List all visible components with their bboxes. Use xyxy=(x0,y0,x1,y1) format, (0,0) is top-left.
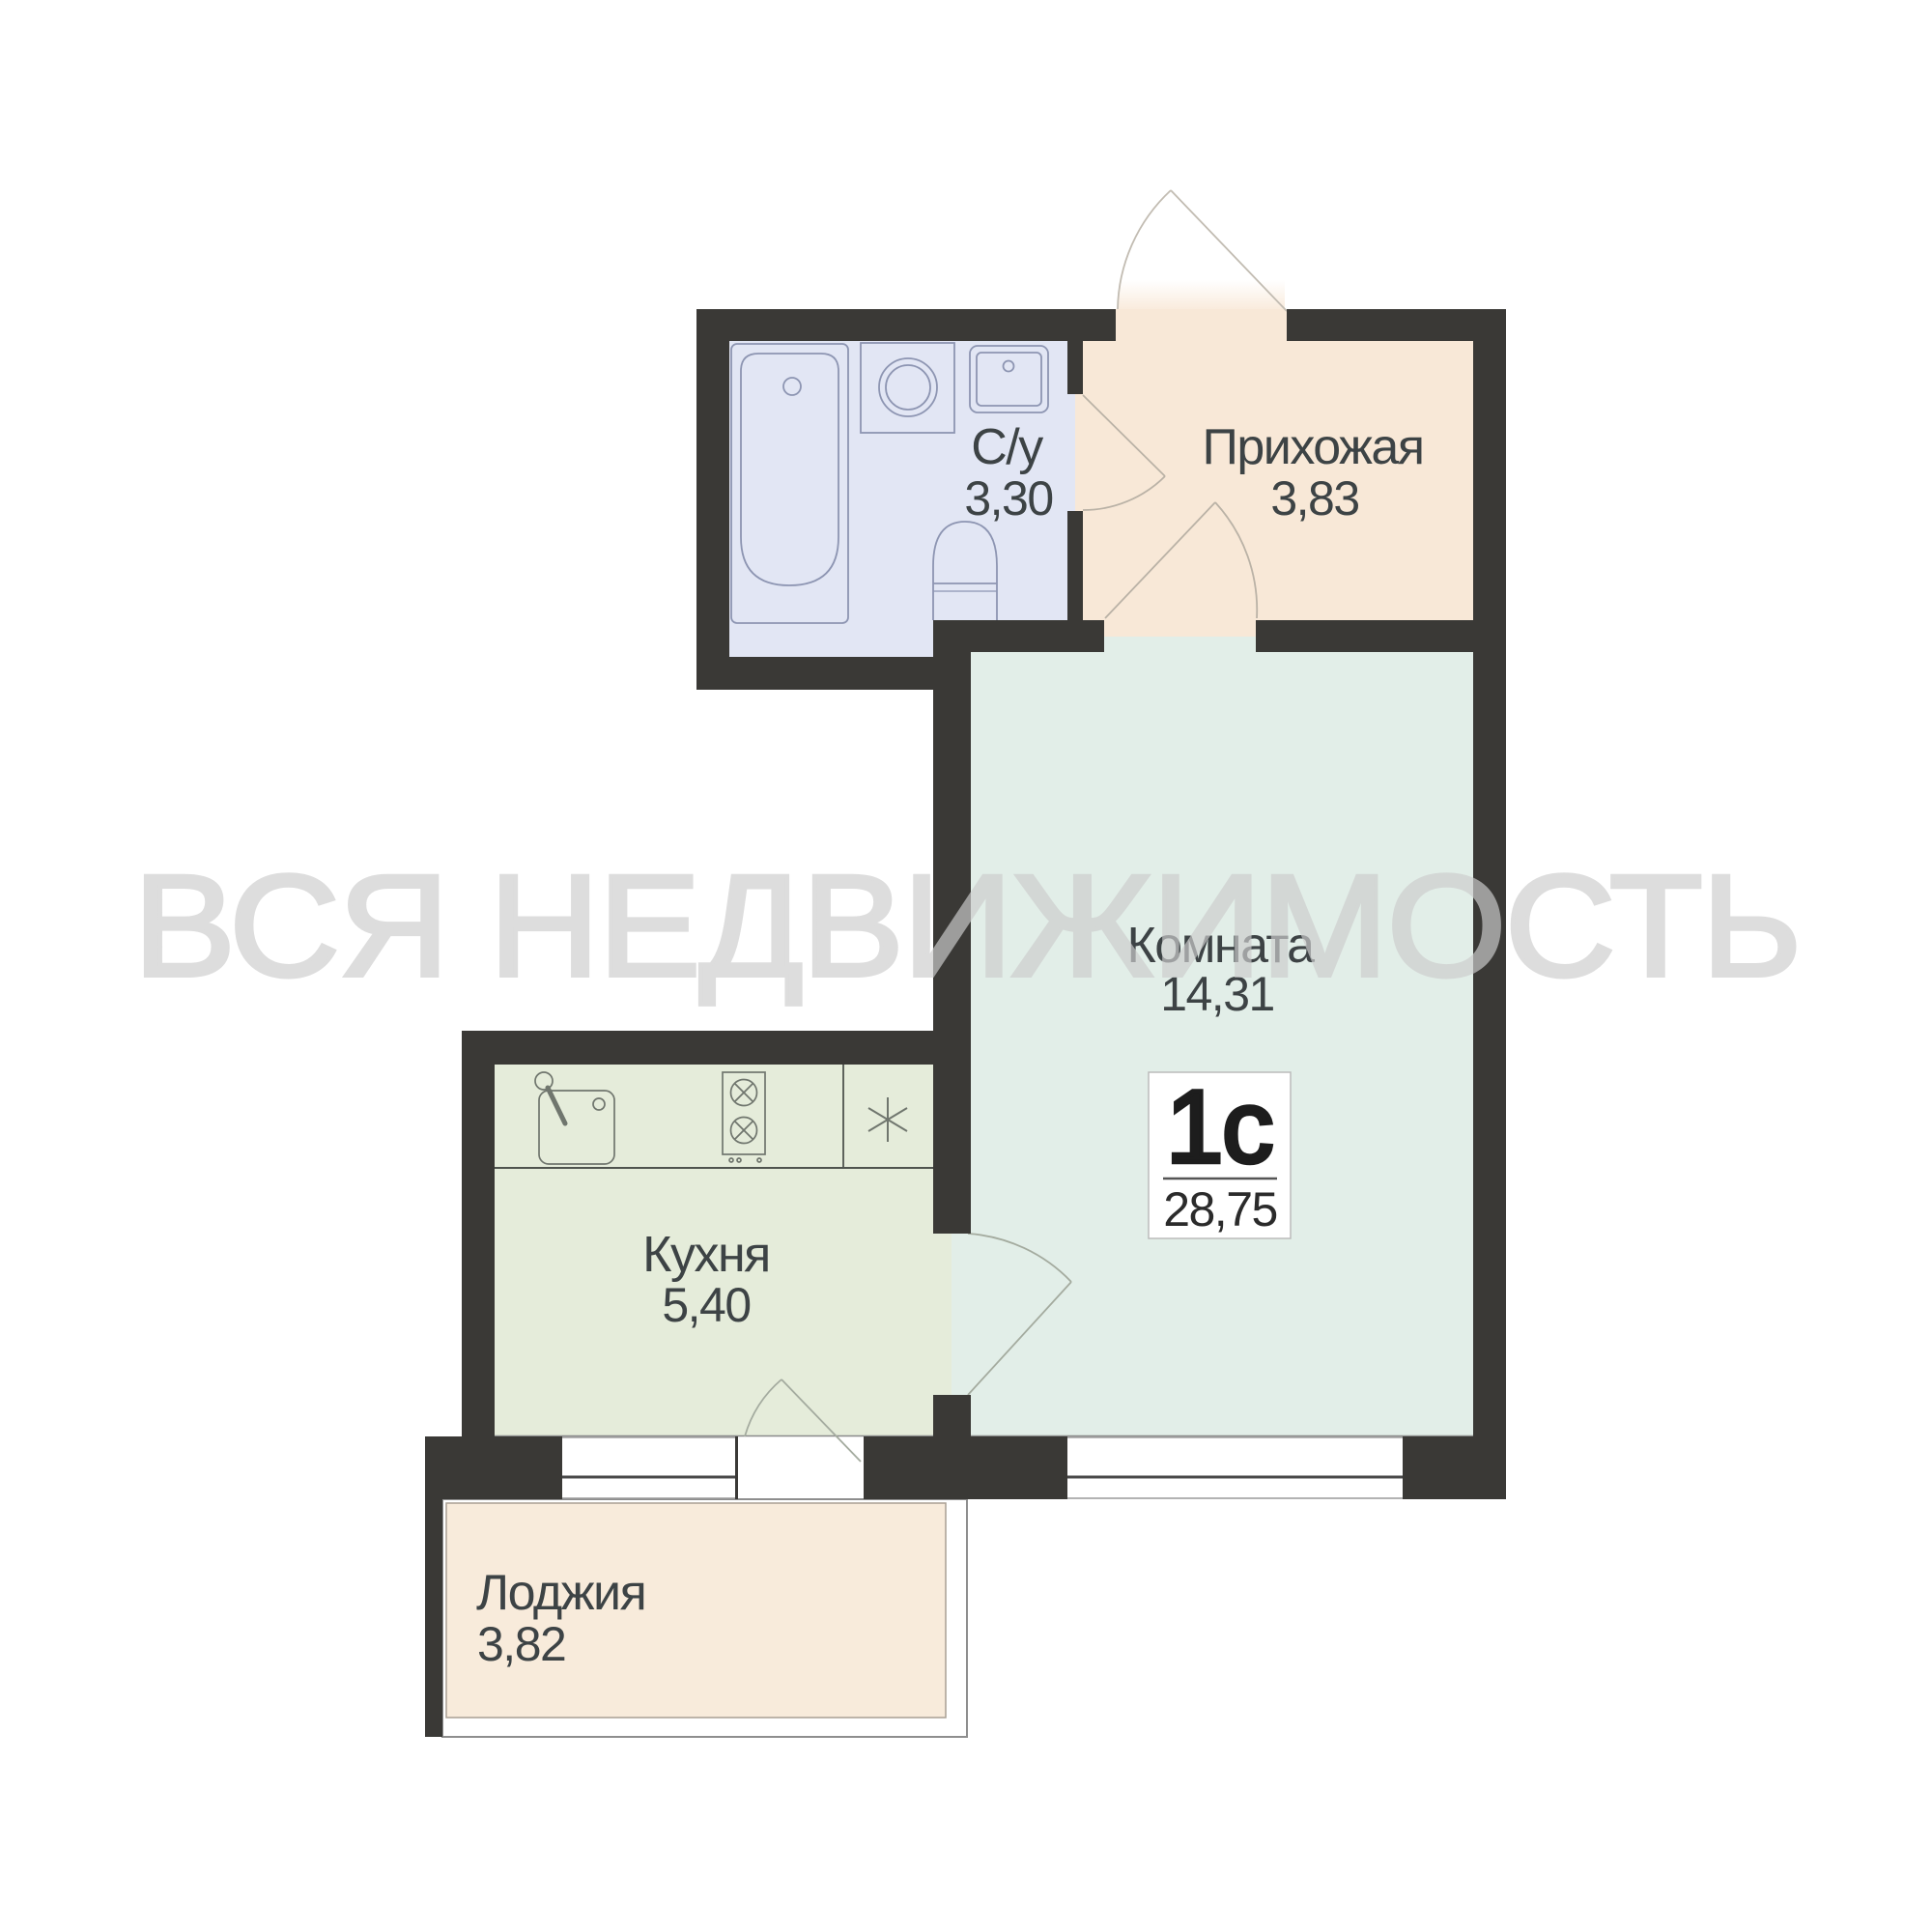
svg-text:Прихожая: Прихожая xyxy=(1203,419,1424,475)
svg-text:28,75: 28,75 xyxy=(1163,1182,1277,1236)
svg-text:С/у: С/у xyxy=(971,419,1043,475)
svg-text:3,82: 3,82 xyxy=(477,1617,565,1671)
svg-text:Лоджия: Лоджия xyxy=(476,1565,645,1621)
svg-text:1с: 1с xyxy=(1166,1068,1272,1184)
svg-text:Кухня: Кухня xyxy=(642,1227,770,1283)
svg-text:5,40: 5,40 xyxy=(662,1278,750,1332)
svg-text:ВСЯ НЕДВИЖИМОСТЬ: ВСЯ НЕДВИЖИМОСТЬ xyxy=(133,844,1801,1007)
svg-text:3,83: 3,83 xyxy=(1270,471,1358,526)
svg-text:3,30: 3,30 xyxy=(964,471,1052,526)
